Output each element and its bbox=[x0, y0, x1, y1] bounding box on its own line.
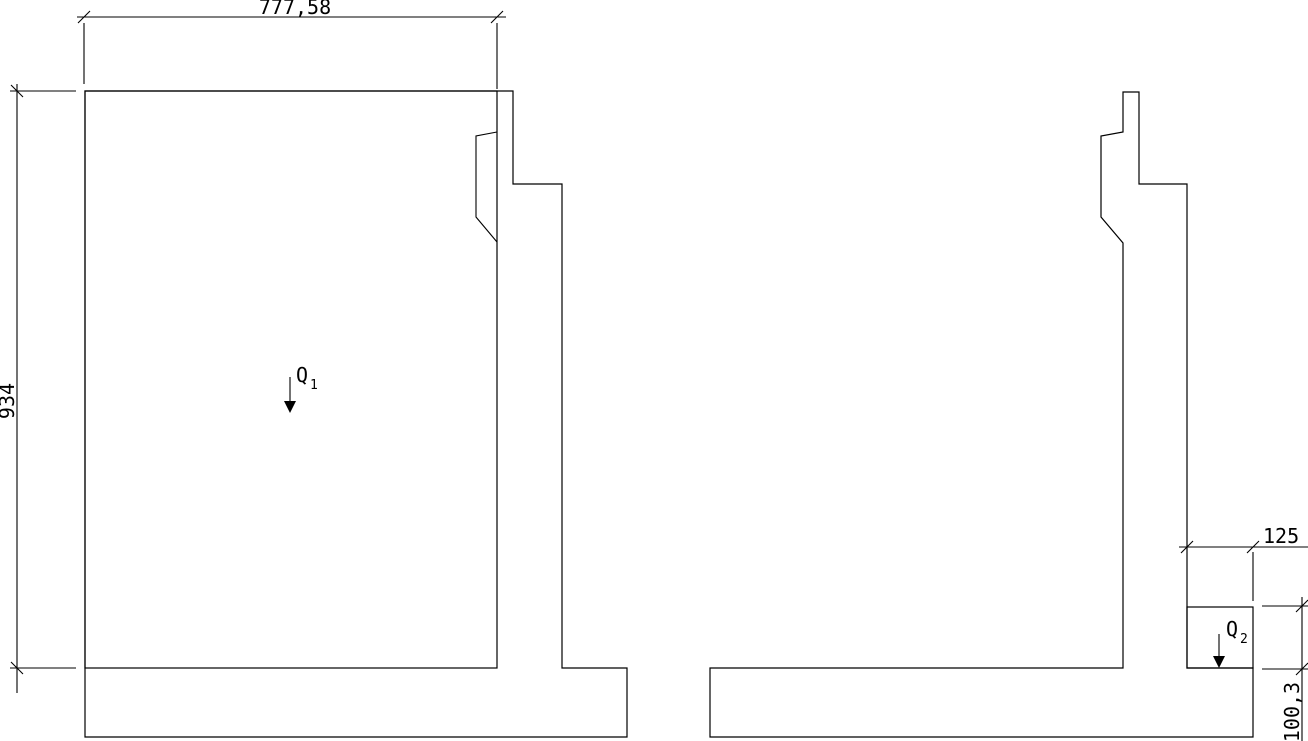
dimension-value-height-right: 100,3 bbox=[1280, 682, 1304, 741]
load-arrow-q2: Q 2 bbox=[1213, 617, 1248, 668]
wall-outline-left bbox=[85, 91, 627, 737]
dimension-value-height-left: 934 bbox=[0, 383, 19, 419]
dimension-value-width-left: 777,58 bbox=[259, 0, 331, 19]
load-label-q1-subscript: 1 bbox=[310, 378, 318, 393]
dimension-value-width-right: 125 bbox=[1263, 524, 1299, 548]
load-arrow-q1: Q 1 bbox=[284, 363, 318, 413]
load-label-q1: Q bbox=[296, 363, 308, 387]
arrow-down-icon bbox=[1213, 656, 1225, 668]
wall-stem-inner-edge bbox=[476, 132, 497, 242]
dimension-height-right: 100,3 bbox=[1262, 597, 1308, 741]
dimension-width-left: 777,58 bbox=[77, 0, 506, 89]
dimension-height-left: 934 bbox=[0, 84, 76, 693]
left-section-view: Q 1 777,58 934 bbox=[0, 0, 627, 737]
load-label-q2: Q bbox=[1226, 617, 1238, 641]
wall-outline-right bbox=[710, 92, 1253, 737]
load-label-q2-subscript: 2 bbox=[1240, 632, 1248, 647]
right-section-view: Q 2 125 100,3 bbox=[710, 92, 1308, 741]
technical-drawing-canvas: Q 1 777,58 934 bbox=[0, 0, 1308, 741]
cad-drawing-page: Q 1 777,58 934 bbox=[0, 0, 1308, 741]
arrow-down-icon bbox=[284, 401, 296, 413]
dimension-width-right: 125 bbox=[1179, 524, 1308, 601]
backfill-hatch-area bbox=[85, 91, 497, 668]
